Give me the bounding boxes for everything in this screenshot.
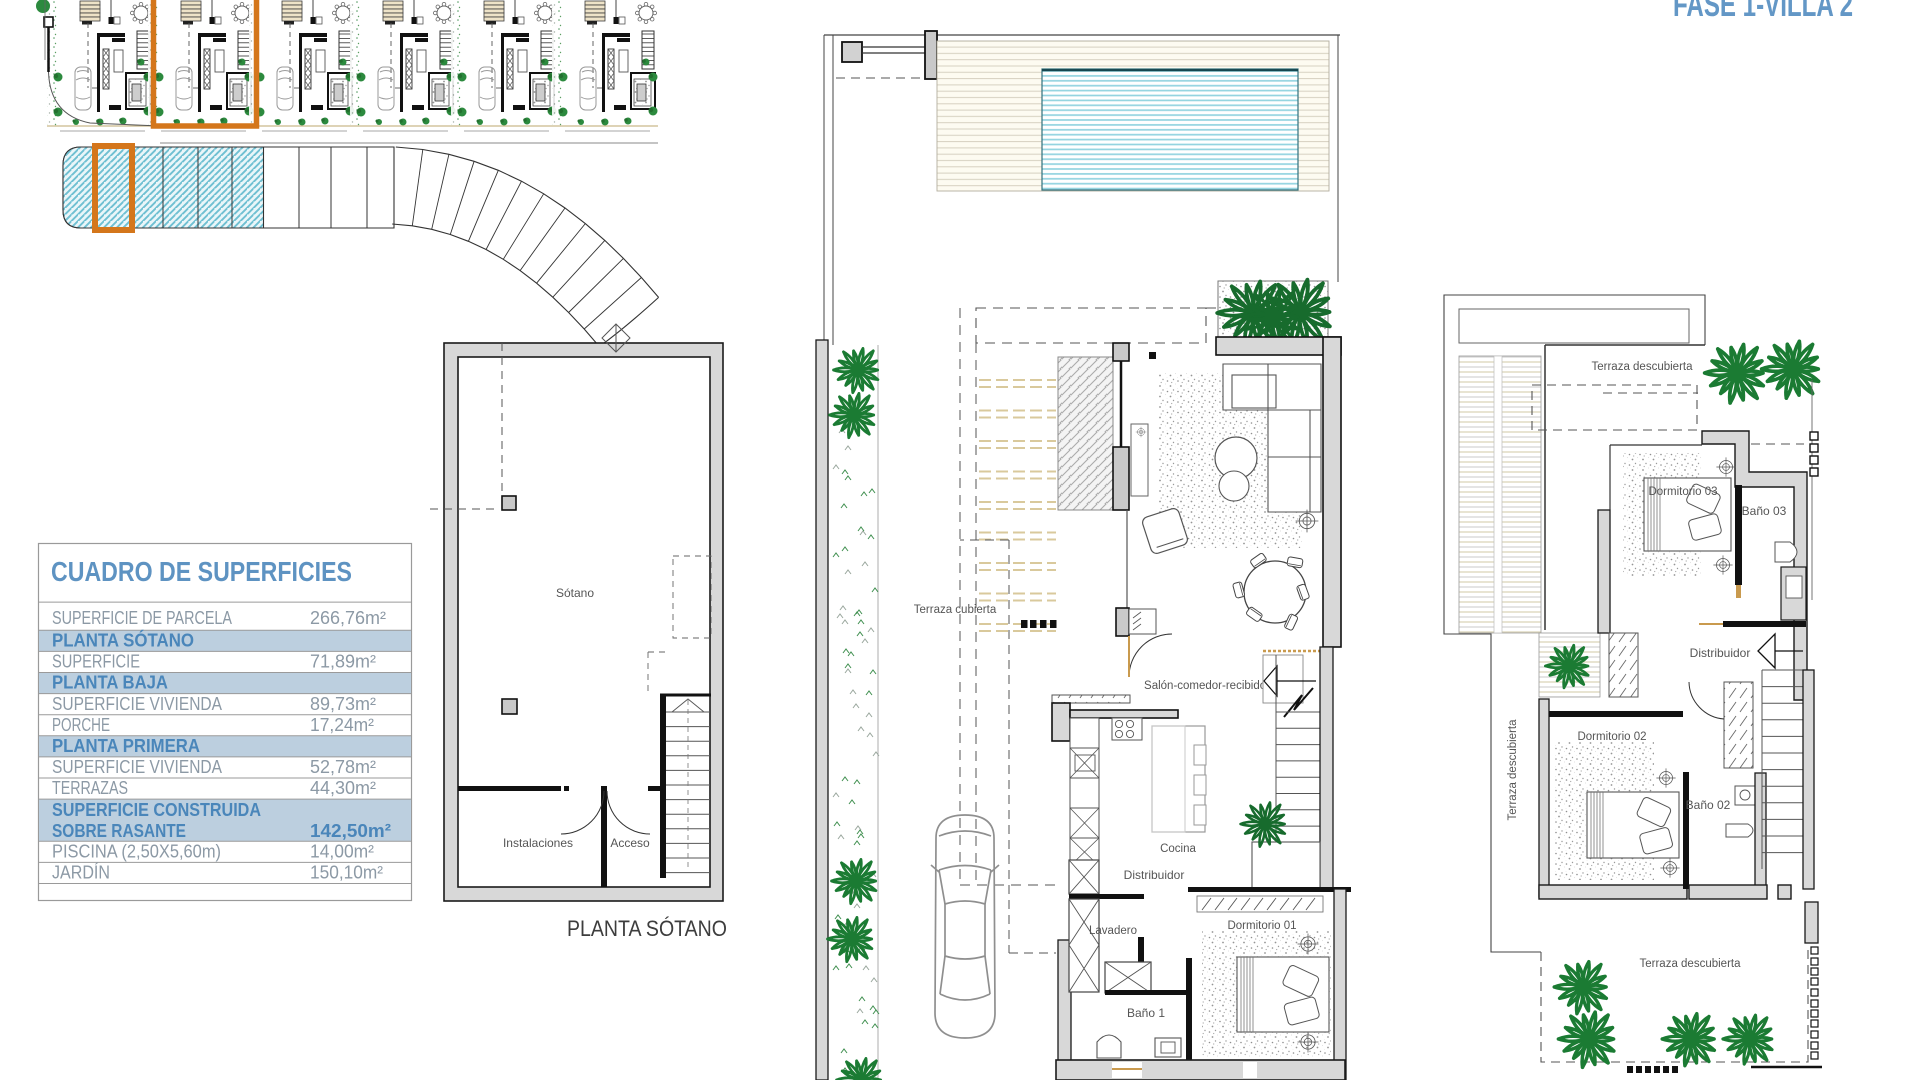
svg-text:Cocina: Cocina bbox=[1160, 843, 1196, 855]
svg-text:SUPERFICIE VIVIENDA: SUPERFICIE VIVIENDA bbox=[52, 694, 222, 714]
svg-text:14,00m²: 14,00m² bbox=[310, 842, 374, 862]
svg-text:SOBRE RASANTE: SOBRE RASANTE bbox=[52, 821, 186, 841]
svg-text:Terraza descubierta: Terraza descubierta bbox=[1640, 958, 1742, 970]
svg-text:PORCHE: PORCHE bbox=[52, 715, 110, 735]
svg-text:Terraza cubierta: Terraza cubierta bbox=[914, 604, 997, 616]
svg-text:FASE 1-VILLA 2: FASE 1-VILLA 2 bbox=[1673, 0, 1853, 24]
svg-text:PISCINA (2,50X5,60m): PISCINA (2,50X5,60m) bbox=[52, 842, 221, 862]
svg-text:89,73m²: 89,73m² bbox=[310, 694, 376, 714]
svg-text:Dormitorio 02: Dormitorio 02 bbox=[1577, 731, 1646, 743]
svg-text:Salón-comedor-recibidor: Salón-comedor-recibidor bbox=[1144, 680, 1270, 692]
svg-text:Terraza descubierta: Terraza descubierta bbox=[1592, 361, 1694, 373]
svg-text:Distribuidor: Distribuidor bbox=[1690, 646, 1751, 660]
svg-text:JARDÍN: JARDÍN bbox=[52, 863, 110, 883]
svg-text:Terraza descubierta: Terraza descubierta bbox=[1507, 719, 1519, 821]
svg-text:Lavadero: Lavadero bbox=[1089, 925, 1137, 937]
svg-text:17,24m²: 17,24m² bbox=[310, 715, 374, 735]
svg-text:SUPERFICIE CONSTRUIDA: SUPERFICIE CONSTRUIDA bbox=[52, 800, 261, 820]
svg-text:TERRAZAS: TERRAZAS bbox=[52, 778, 128, 798]
svg-text:Baño 03: Baño 03 bbox=[1742, 504, 1787, 518]
svg-text:Dormitorio 03: Dormitorio 03 bbox=[1648, 486, 1717, 498]
svg-text:Baño 1: Baño 1 bbox=[1127, 1006, 1165, 1020]
svg-text:PLANTA BAJA: PLANTA BAJA bbox=[52, 673, 168, 693]
svg-text:PLANTA PRIMERA: PLANTA PRIMERA bbox=[52, 736, 200, 756]
svg-text:Sótano: Sótano bbox=[556, 586, 594, 600]
svg-text:Baño 02: Baño 02 bbox=[1686, 798, 1731, 812]
svg-text:Distribuidor: Distribuidor bbox=[1124, 868, 1185, 882]
svg-text:CUADRO DE SUPERFICIES: CUADRO DE SUPERFICIES bbox=[51, 556, 352, 587]
svg-text:142,50m²: 142,50m² bbox=[310, 820, 391, 841]
svg-text:150,10m²: 150,10m² bbox=[310, 863, 383, 883]
svg-text:52,78m²: 52,78m² bbox=[310, 757, 376, 777]
svg-text:Instalaciones: Instalaciones bbox=[503, 836, 573, 850]
svg-text:266,76m²: 266,76m² bbox=[310, 608, 386, 628]
svg-text:PLANTA SÓTANO: PLANTA SÓTANO bbox=[52, 630, 194, 651]
svg-text:71,89m²: 71,89m² bbox=[310, 652, 376, 672]
svg-text:Acceso: Acceso bbox=[610, 836, 650, 850]
svg-text:44,30m²: 44,30m² bbox=[310, 778, 376, 798]
svg-text:SUPERFICIE VIVIENDA: SUPERFICIE VIVIENDA bbox=[52, 757, 222, 777]
svg-text:PLANTA SÓTANO: PLANTA SÓTANO bbox=[567, 916, 727, 941]
svg-text:SUPERFICIE DE PARCELA: SUPERFICIE DE PARCELA bbox=[52, 608, 232, 628]
svg-text:Dormitorio 01: Dormitorio 01 bbox=[1227, 920, 1296, 932]
svg-text:SUPERFICIE: SUPERFICIE bbox=[52, 652, 140, 672]
